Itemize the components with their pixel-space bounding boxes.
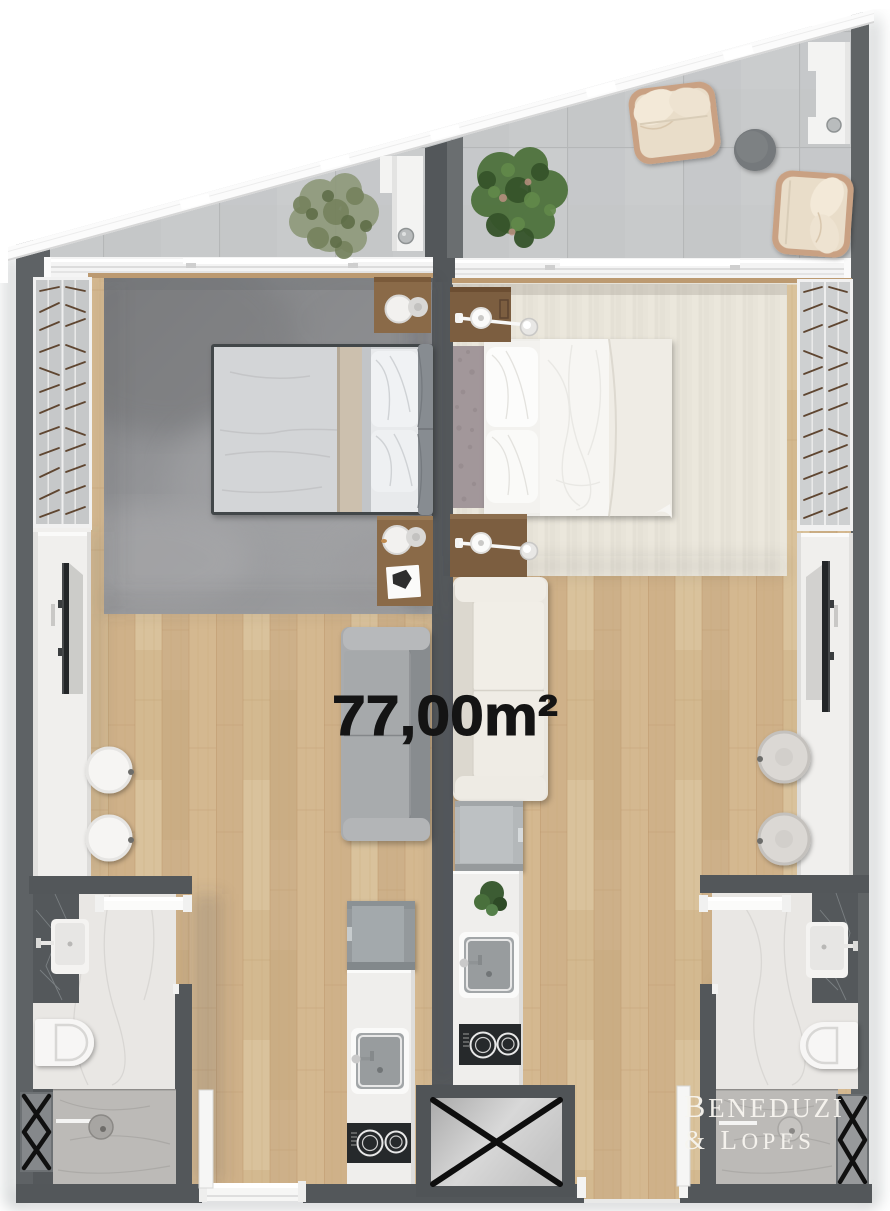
svg-text:BENEDUZI: BENEDUZI [684,1088,845,1124]
svg-text:77,00m²: 77,00m² [332,684,558,748]
svg-text:& LOPES: & LOPES [684,1125,815,1155]
